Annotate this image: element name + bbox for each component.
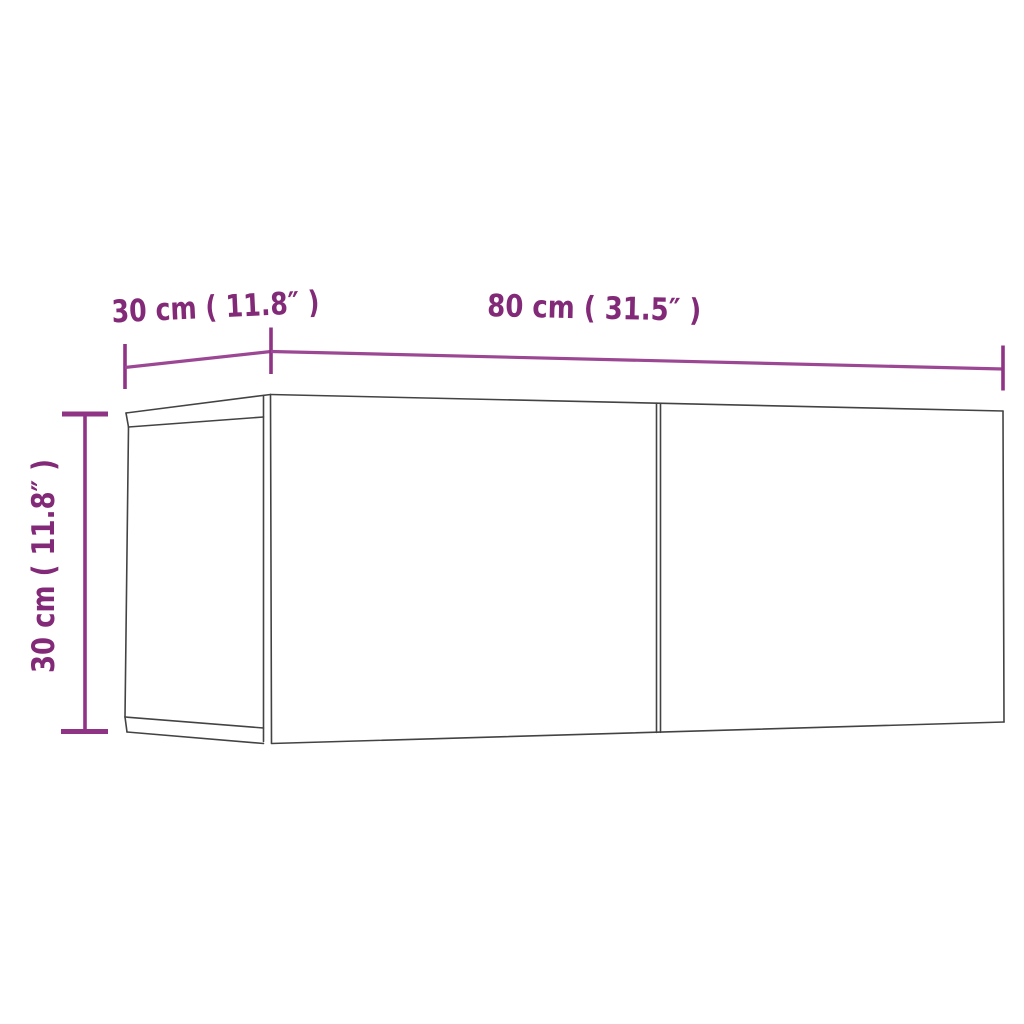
side-bottom-band-left-cap [125, 717, 127, 732]
height-label: 30 cm ( 11.8″ ) [26, 459, 62, 673]
depth-dimension: 30 cm ( 11.8″ ) [111, 285, 320, 389]
side-top-band-top-edge [126, 395, 271, 414]
front-bottom-edge [272, 722, 1005, 744]
width-dimension-line [271, 352, 1003, 370]
cabinet-drawing [125, 395, 1004, 744]
front-top-edge [271, 395, 1004, 412]
side-panel-left-edge [125, 427, 129, 717]
product-dimension-image: 30 cm ( 11.8″ ) 80 cm ( 31.5″ ) 30 cm ( … [0, 0, 1024, 1024]
front-right-edge [1003, 411, 1004, 722]
side-bottom-band-bottom-edge [127, 732, 264, 744]
front-left-outer-edge [271, 395, 272, 744]
side-top-band-bottom-edge [129, 417, 264, 427]
width-label: 80 cm ( 31.5″ ) [487, 288, 702, 329]
dimension-diagram-svg: 30 cm ( 11.8″ ) 80 cm ( 31.5″ ) 30 cm ( … [0, 0, 1024, 1024]
height-dimension: 30 cm ( 11.8″ ) [26, 414, 108, 732]
side-bottom-band-top-edge [125, 717, 264, 728]
width-dimension: 80 cm ( 31.5″ ) [271, 288, 1003, 390]
side-top-band-left-cap [126, 413, 129, 427]
depth-dimension-line [125, 352, 271, 368]
depth-label: 30 cm ( 11.8″ ) [111, 285, 320, 331]
